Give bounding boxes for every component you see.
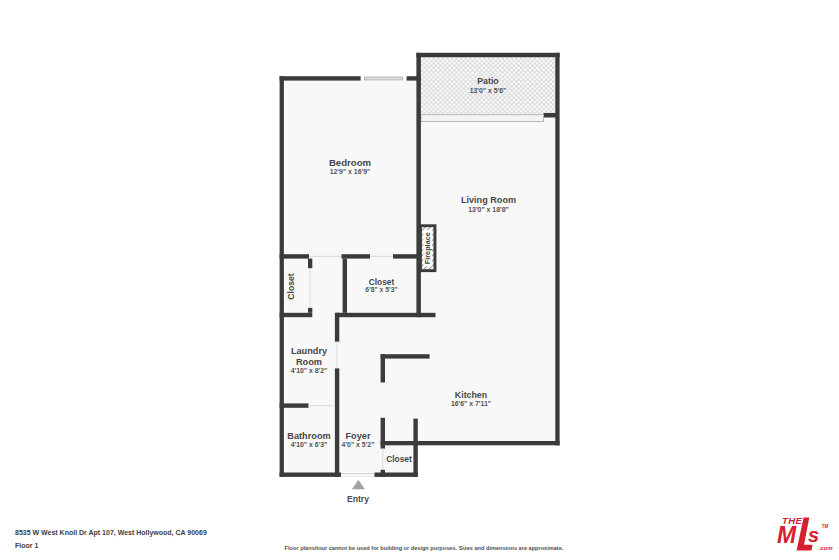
svg-text:Entry: Entry	[347, 494, 369, 504]
svg-text:Living Room: Living Room	[461, 195, 516, 205]
svg-text:s: s	[808, 524, 819, 546]
svg-text:16'6" x 7'11": 16'6" x 7'11"	[451, 400, 491, 407]
svg-text:Closet: Closet	[386, 454, 412, 464]
svg-text:13'0" x 18'8": 13'0" x 18'8"	[468, 206, 508, 213]
svg-text:12'9" x 16'9": 12'9" x 16'9"	[330, 168, 370, 175]
svg-text:Kitchen: Kitchen	[455, 390, 487, 400]
svg-text:4'0" x 5'2": 4'0" x 5'2"	[342, 441, 375, 448]
svg-text:Bathroom: Bathroom	[287, 431, 330, 441]
svg-text:13'0" x 5'6": 13'0" x 5'6"	[470, 87, 507, 94]
svg-text:Closet: Closet	[369, 277, 395, 287]
svg-text:Bedroom: Bedroom	[329, 157, 371, 168]
svg-text:Closet: Closet	[286, 273, 296, 299]
svg-text:Floor plans/tour cannot be use: Floor plans/tour cannot be used for buil…	[285, 545, 564, 551]
svg-text:4'10" x 6'3": 4'10" x 6'3"	[291, 441, 328, 448]
svg-text:Patio: Patio	[477, 76, 499, 86]
svg-text:Fireplace: Fireplace	[423, 232, 432, 264]
svg-text:TM: TM	[822, 524, 829, 529]
svg-text:.com: .com	[819, 545, 834, 551]
svg-text:M: M	[777, 522, 797, 548]
svg-text:Floor 1: Floor 1	[15, 542, 38, 549]
svg-text:4'10" x 8'2": 4'10" x 8'2"	[291, 367, 328, 374]
svg-text:Foyer: Foyer	[345, 431, 370, 441]
svg-text:Laundry: Laundry	[291, 346, 328, 356]
svg-text:8535 W West Knoll Dr Apt 107,: 8535 W West Knoll Dr Apt 107, West Holly…	[15, 529, 207, 537]
svg-text:Room: Room	[296, 357, 322, 367]
svg-text:6'8" x 5'3": 6'8" x 5'3"	[365, 286, 397, 293]
